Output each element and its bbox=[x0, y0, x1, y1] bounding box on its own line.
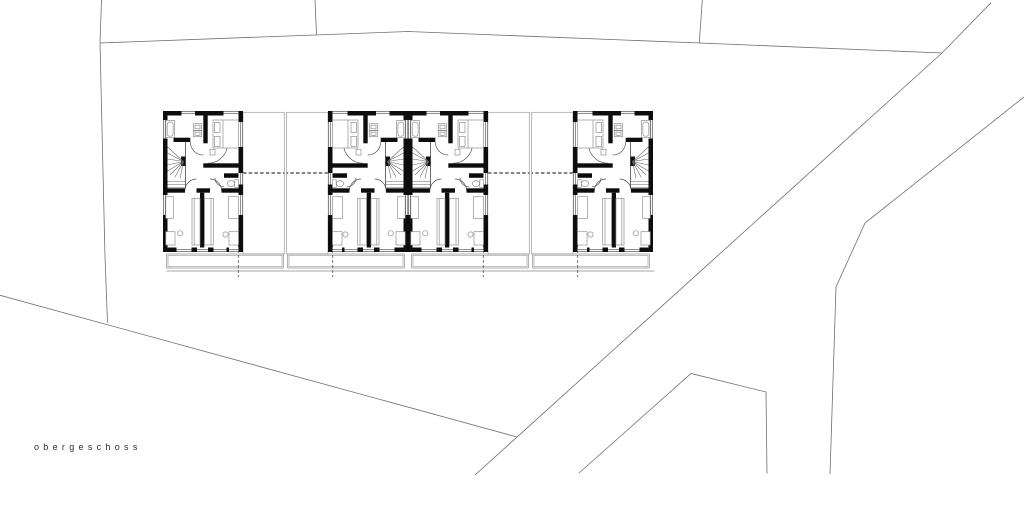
floor-plan-drawing: obergeschoss bbox=[0, 0, 1024, 515]
boundary-tick-1 bbox=[315, 0, 317, 35]
site-boundary-lines bbox=[0, 0, 1024, 475]
plot-boundary-west bbox=[100, 0, 108, 323]
plot-boundary-north bbox=[100, 32, 942, 54]
path-edge-south bbox=[579, 374, 767, 474]
house-unit-3 bbox=[408, 111, 530, 277]
plot-boundary-southwest bbox=[0, 295, 517, 437]
house-unit-2 bbox=[287, 111, 409, 277]
road-edge-northeast bbox=[475, 3, 991, 475]
road-edge-east bbox=[830, 97, 1024, 474]
house-unit-1 bbox=[163, 111, 285, 277]
floor-label: obergeschoss bbox=[34, 442, 142, 452]
floor-plan-sheet: obergeschoss bbox=[0, 0, 1024, 515]
boundary-tick-2 bbox=[699, 0, 702, 43]
house-unit-4 bbox=[532, 111, 654, 277]
